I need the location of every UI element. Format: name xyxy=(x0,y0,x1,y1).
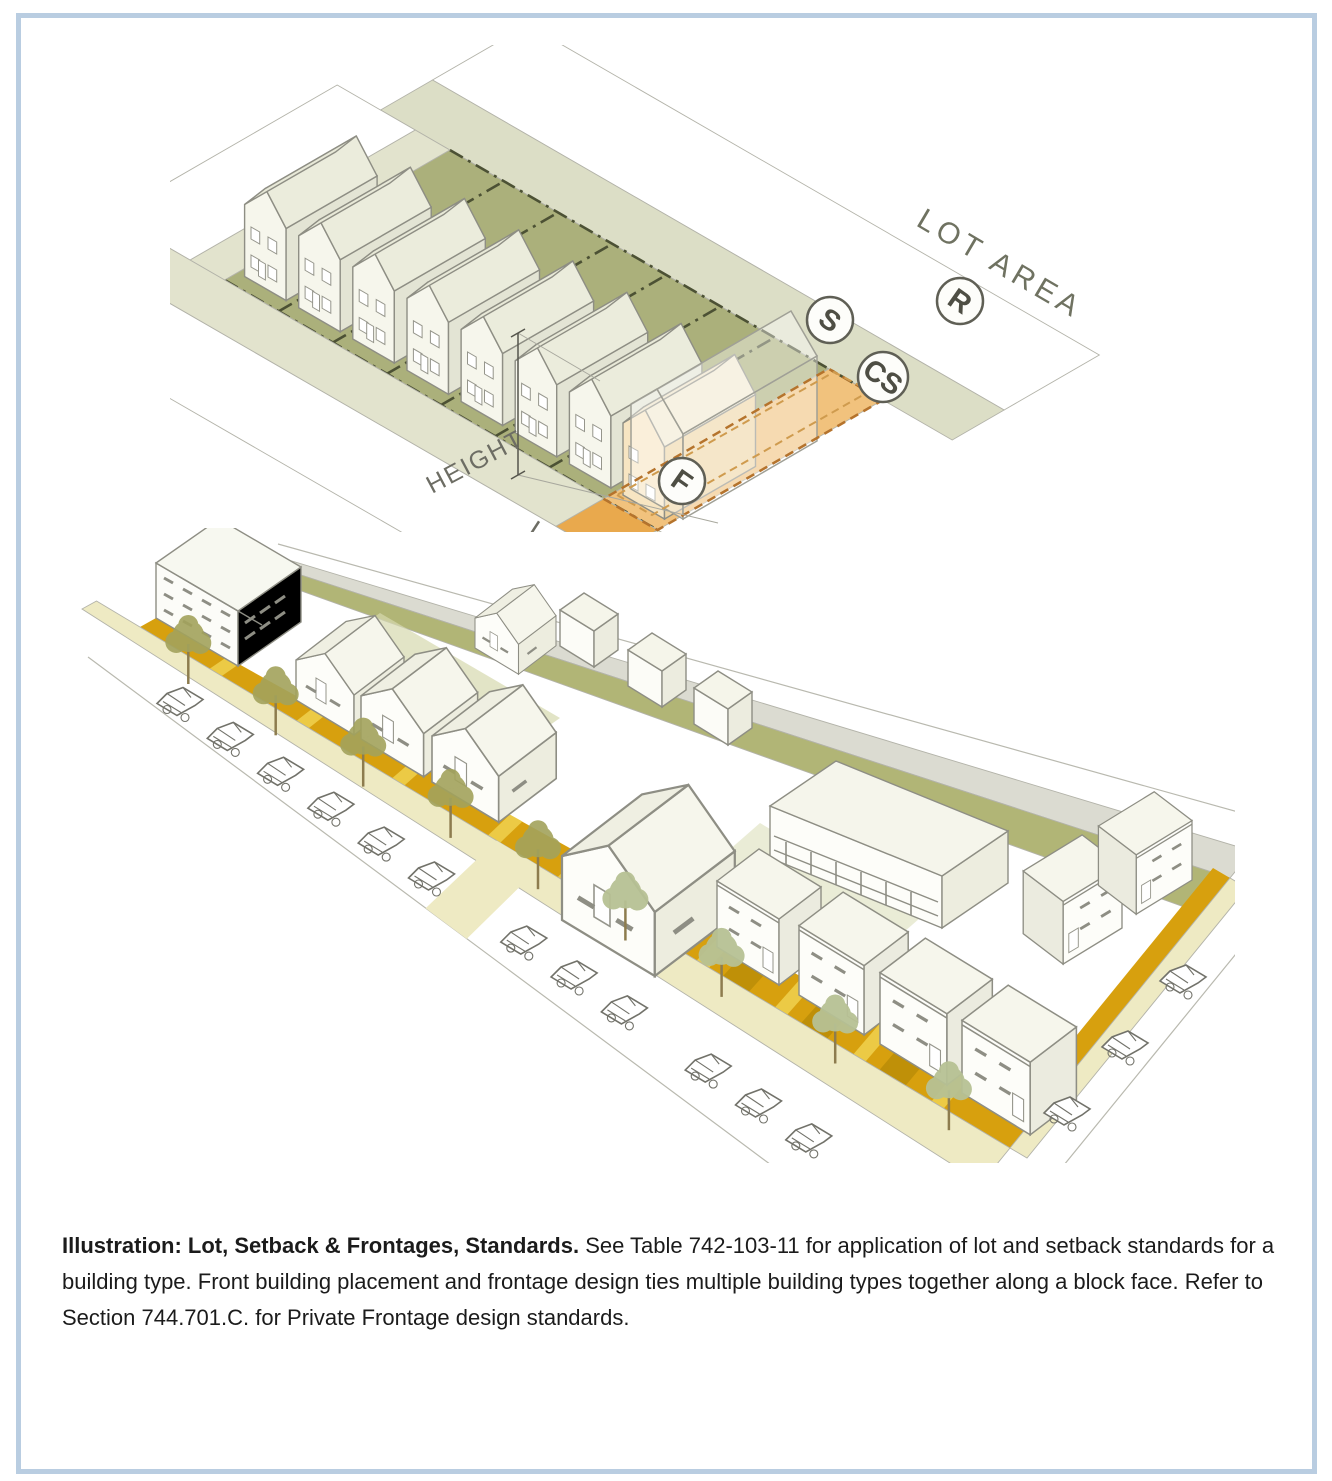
caption-lead: Illustration: Lot, Setback & Frontages, … xyxy=(62,1233,579,1258)
badge-f: F xyxy=(659,458,705,504)
document-page: LOT AREA HEIGHT LO S R CS F xyxy=(0,0,1332,1481)
block-face-frontage-svg xyxy=(80,528,1235,1163)
badge-s: S xyxy=(807,297,853,343)
lot-setback-standards-diagram: LOT AREA HEIGHT LO S R CS F xyxy=(170,45,1180,532)
badge-r: R xyxy=(937,278,983,324)
badge-cs: CS xyxy=(857,352,908,402)
block-face-frontage-illustration xyxy=(80,528,1235,1163)
figure-caption: Illustration: Lot, Setback & Frontages, … xyxy=(62,1228,1276,1336)
lot-setback-standards-svg: LOT AREA HEIGHT LO S R CS F xyxy=(170,45,1180,532)
